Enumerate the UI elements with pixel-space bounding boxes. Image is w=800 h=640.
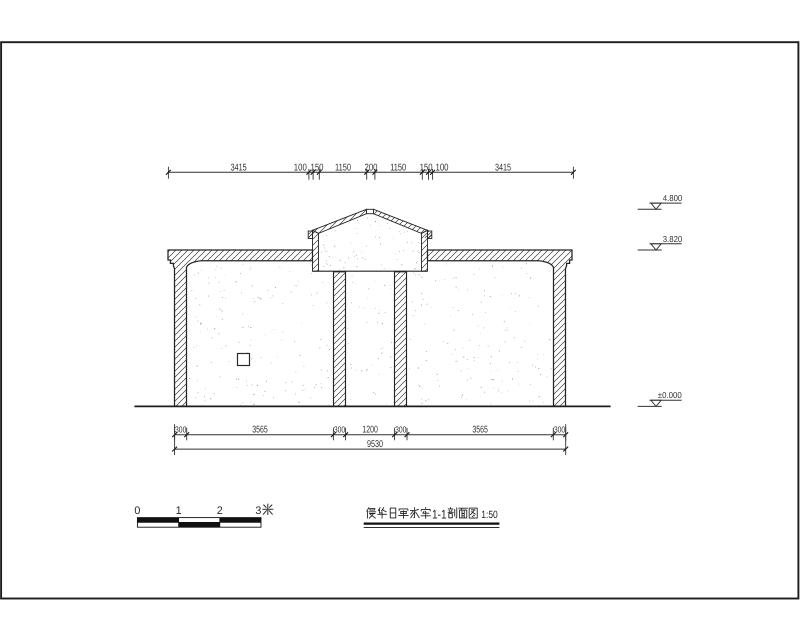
- svg-text:300: 300: [395, 425, 406, 435]
- svg-text:3415: 3415: [231, 162, 247, 173]
- svg-text:3565: 3565: [252, 425, 268, 436]
- svg-text:150: 150: [311, 162, 324, 173]
- svg-text:100: 100: [294, 162, 307, 173]
- svg-text:1200: 1200: [362, 425, 378, 436]
- svg-text:2: 2: [217, 505, 223, 517]
- svg-text:3: 3: [255, 505, 261, 517]
- svg-text:1: 1: [176, 505, 182, 517]
- svg-text:1150: 1150: [335, 162, 351, 173]
- svg-text:3.820: 3.820: [663, 234, 683, 244]
- svg-text:3415: 3415: [495, 162, 511, 173]
- svg-text:100: 100: [436, 162, 449, 173]
- svg-text:150: 150: [420, 162, 433, 173]
- svg-text:1150: 1150: [390, 162, 406, 173]
- svg-text:4.800: 4.800: [663, 193, 683, 203]
- svg-text:1:50: 1:50: [481, 509, 498, 521]
- svg-text:0: 0: [134, 505, 140, 517]
- svg-text:9530: 9530: [367, 439, 383, 450]
- svg-text:300: 300: [554, 425, 565, 435]
- svg-text:300: 300: [175, 425, 186, 435]
- svg-text:1-1: 1-1: [432, 507, 447, 521]
- svg-text:300: 300: [334, 425, 345, 435]
- svg-text:±0.000: ±0.000: [658, 390, 682, 400]
- svg-text:3565: 3565: [472, 425, 488, 436]
- svg-text:200: 200: [365, 162, 378, 173]
